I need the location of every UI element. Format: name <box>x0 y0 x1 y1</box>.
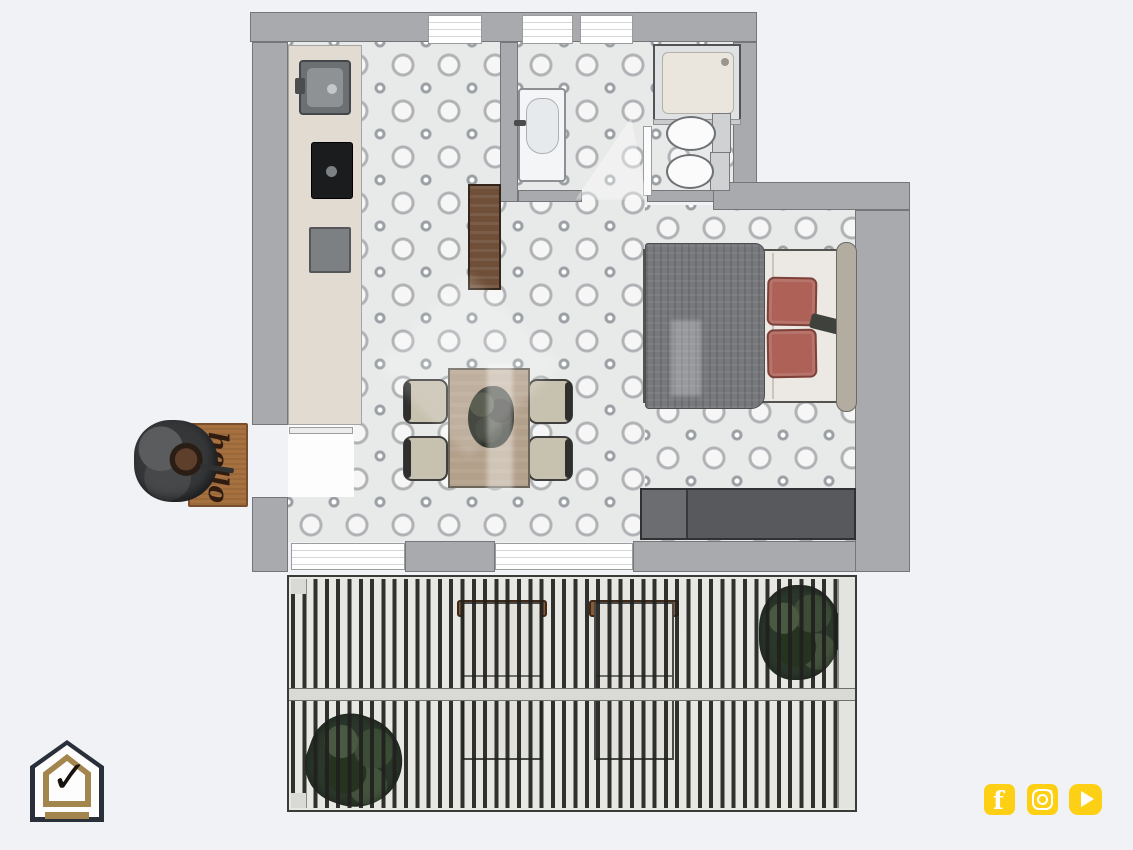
bidet <box>666 116 716 151</box>
sink-basin <box>307 68 343 107</box>
shower <box>653 44 741 124</box>
wall-right <box>855 210 910 572</box>
washbasin-bowl <box>526 98 559 154</box>
wardrobe <box>640 488 856 540</box>
wall-top <box>250 12 757 42</box>
logo-check-icon: ✓ <box>51 756 88 800</box>
washbasin <box>518 88 566 182</box>
bathroom-door-leaf <box>643 126 652 196</box>
kitchen-sink <box>299 60 351 115</box>
floorplan-canvas: hello <box>0 0 1133 850</box>
bed-headboard <box>836 242 857 412</box>
youtube-play-glyph <box>1081 791 1094 807</box>
window-terrace-2 <box>495 543 633 570</box>
sink-drain <box>327 84 337 94</box>
counter-appliance <box>309 227 351 273</box>
wall-left-lower <box>252 497 288 572</box>
pergola-post <box>291 793 306 808</box>
chair-backrest <box>404 439 411 478</box>
wardrobe-left-module <box>642 490 688 538</box>
house-check-logo: ✓ <box>30 740 104 822</box>
toilet <box>666 154 714 189</box>
wall-left-upper <box>252 42 288 425</box>
terrace <box>287 575 857 812</box>
instagram-dot <box>1049 790 1052 793</box>
bed-pillow <box>767 329 818 379</box>
window-terrace-1 <box>291 543 405 570</box>
cooktop <box>311 142 353 199</box>
entry-plant <box>134 420 218 502</box>
sideboard <box>468 184 501 290</box>
chair-backrest <box>565 439 572 478</box>
window-top-bath-2 <box>580 15 633 44</box>
dining-chair <box>528 436 573 481</box>
instagram-icon[interactable] <box>1027 784 1058 815</box>
shower-drain <box>721 58 729 66</box>
entry-door-swing <box>288 425 354 497</box>
logo-gold-bar <box>45 812 89 819</box>
pergola-post <box>291 579 306 594</box>
cooktop-knob <box>326 166 337 177</box>
dining-chair <box>403 436 448 481</box>
youtube-icon[interactable] <box>1069 784 1102 815</box>
facebook-f-glyph: f <box>993 786 1004 815</box>
bed-blanket <box>645 243 765 409</box>
washbasin-faucet <box>514 120 526 126</box>
wall-bottom-pier <box>405 541 495 572</box>
entry-door-leaf <box>289 427 353 434</box>
instagram-lens <box>1037 794 1048 805</box>
wall-bathroom-bottom-left <box>518 190 582 202</box>
window-top-bath-1 <box>522 15 573 44</box>
kitchen-faucet <box>295 78 305 94</box>
wall-bedroom-top <box>713 182 910 210</box>
chair-backrest <box>565 382 572 421</box>
pergola-middle-beam <box>289 688 855 701</box>
window-top-living <box>428 15 482 44</box>
facebook-icon[interactable]: f <box>984 784 1015 815</box>
